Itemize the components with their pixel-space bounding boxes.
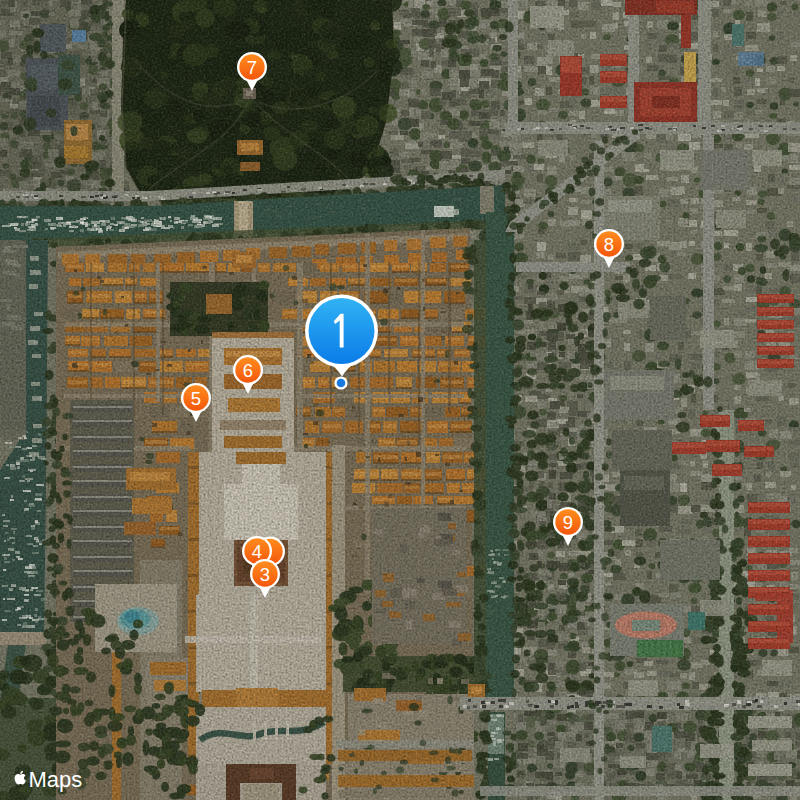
svg-text:6: 6 (243, 360, 253, 381)
svg-text:3: 3 (260, 564, 270, 585)
svg-text:Maps: Maps (29, 767, 83, 792)
svg-text:4: 4 (252, 541, 262, 562)
svg-text:8: 8 (604, 234, 614, 255)
svg-text:7: 7 (247, 57, 257, 78)
svg-text:9: 9 (563, 512, 573, 533)
svg-text:5: 5 (191, 388, 201, 409)
